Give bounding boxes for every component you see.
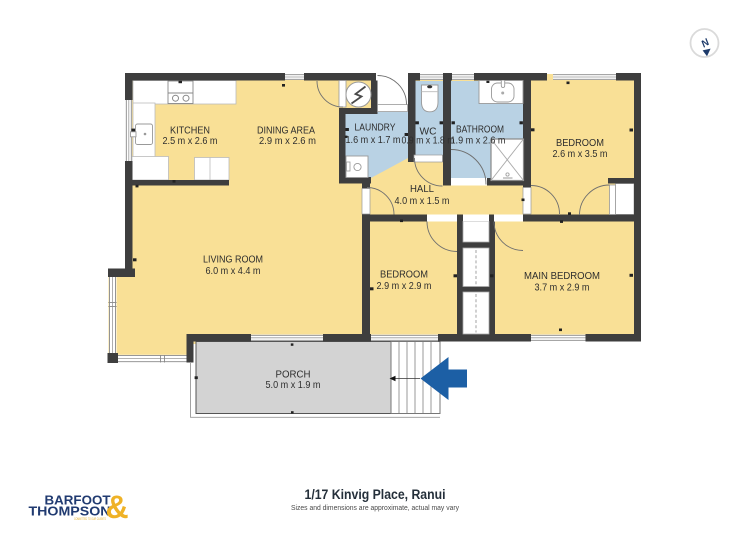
svg-text:LIVING ROOM: LIVING ROOM xyxy=(203,254,263,266)
svg-text:2.9 m x 2.6 m: 2.9 m x 2.6 m xyxy=(259,135,316,147)
svg-text:3.7 m x 2.9 m: 3.7 m x 2.9 m xyxy=(535,282,590,294)
svg-text:1/17 Kinvig Place, Ranui: 1/17 Kinvig Place, Ranui xyxy=(305,487,446,502)
svg-text:5.0 m x 1.9 m: 5.0 m x 1.9 m xyxy=(266,379,321,391)
svg-text:&: & xyxy=(105,489,128,525)
svg-text:4.0 m x 1.5 m: 4.0 m x 1.5 m xyxy=(395,195,450,207)
svg-text:BEDROOM: BEDROOM xyxy=(380,269,428,281)
svg-text:2.5 m x 2.6 m: 2.5 m x 2.6 m xyxy=(163,135,218,147)
svg-text:Sizes and dimensions are appro: Sizes and dimensions are approximate, ac… xyxy=(291,505,459,512)
svg-text:HALL: HALL xyxy=(410,183,434,195)
svg-text:LAUNDRY: LAUNDRY xyxy=(355,122,396,134)
svg-text:6.0 m x 4.4 m: 6.0 m x 4.4 m xyxy=(206,265,261,277)
svg-text:COMMITTED TO OUR CLIENTS: COMMITTED TO OUR CLIENTS xyxy=(74,517,106,521)
svg-text:MAIN BEDROOM: MAIN BEDROOM xyxy=(524,270,600,282)
svg-text:2.6 m x 3.5 m: 2.6 m x 3.5 m xyxy=(553,148,608,160)
svg-text:1.6 m x 1.7 m: 1.6 m x 1.7 m xyxy=(346,134,401,146)
svg-text:1.9 m x 2.6 m: 1.9 m x 2.6 m xyxy=(451,135,506,147)
svg-text:2.9 m x 2.9 m: 2.9 m x 2.9 m xyxy=(377,280,432,292)
svg-text:0.9 m x 1.8 m: 0.9 m x 1.8 m xyxy=(402,135,455,147)
